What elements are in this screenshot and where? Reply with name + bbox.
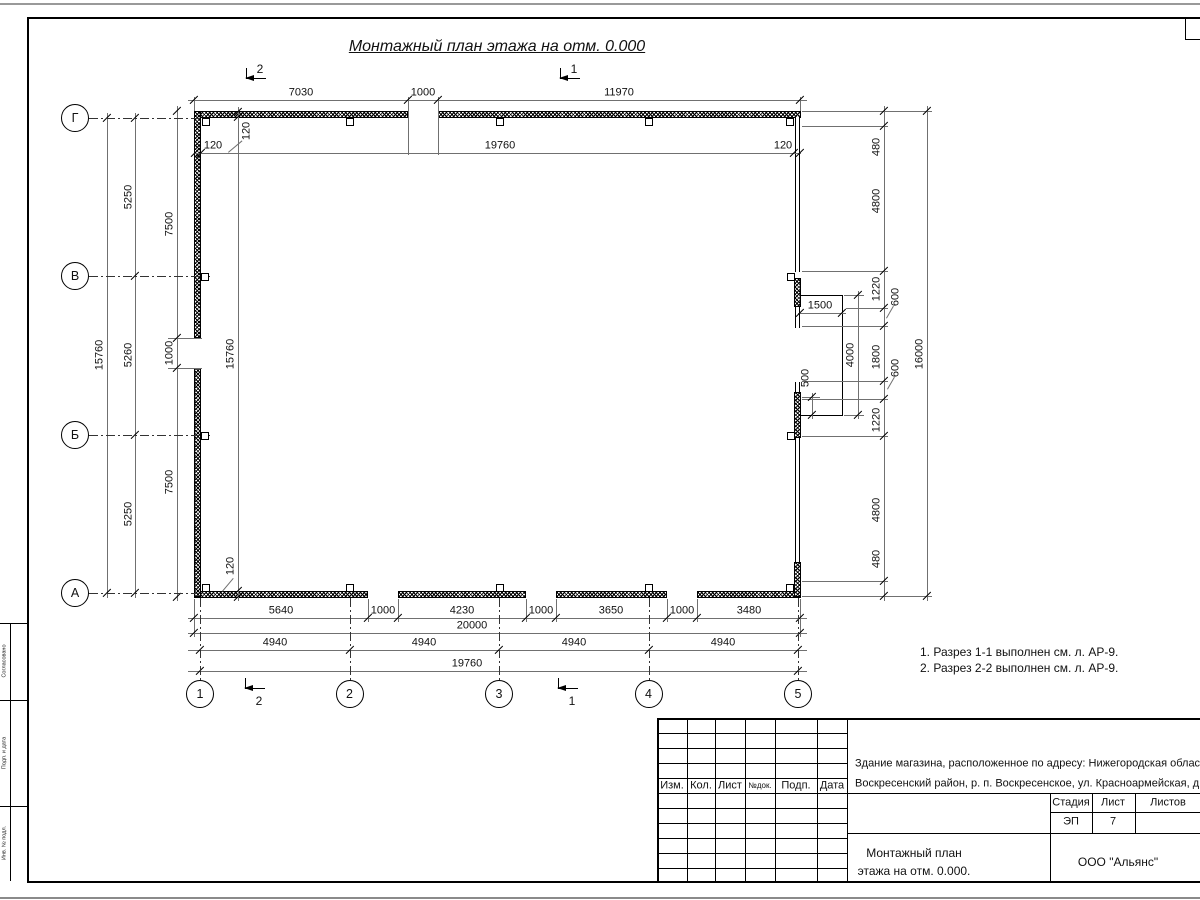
dim-label: 15760 <box>226 339 237 370</box>
tb-col-ndok: №док. <box>748 782 771 790</box>
dim-label: 1500 <box>808 301 832 312</box>
section-mark-stroke <box>245 678 246 688</box>
dim-label: 19760 <box>452 659 483 670</box>
tb-sheet-label: Лист <box>1101 798 1125 809</box>
frame-line <box>27 881 1200 883</box>
dim-label: 20000 <box>457 621 488 632</box>
section-mark-label: 2 <box>256 695 263 707</box>
dim-label: 7500 <box>165 212 176 236</box>
wall-right-pier-1 <box>794 278 801 307</box>
dimension-line <box>188 100 807 101</box>
dim-label: 7030 <box>289 88 313 99</box>
dim-label: 1000 <box>411 88 435 99</box>
column-marker <box>496 118 504 126</box>
dim-label: 1000 <box>165 341 176 365</box>
axis-bubble-bottom: 1 <box>186 680 214 708</box>
wall-right-thin-4 <box>795 438 800 562</box>
frame-line <box>658 868 847 869</box>
axis-bubble-left: Б <box>61 421 89 449</box>
frame-line <box>658 823 847 824</box>
dim-label: 1000 <box>371 606 395 617</box>
column-marker <box>787 432 795 440</box>
dimension-line <box>802 126 888 127</box>
wall-bottom-3 <box>556 591 667 598</box>
column-marker <box>346 584 354 592</box>
wall-left-lower <box>194 368 201 597</box>
wall-bottom-1 <box>194 591 368 598</box>
wall-right-lower <box>794 562 801 597</box>
dim-label: 120 <box>204 141 222 152</box>
dimension-line <box>927 106 928 601</box>
dim-label: 600 <box>891 359 902 377</box>
dim-label: 500 <box>801 369 812 387</box>
tb-col-podp: Подп. <box>781 781 810 792</box>
tb-drawing-name-1: Монтажный план <box>866 847 962 859</box>
axis-bubble-bottom: 5 <box>784 680 812 708</box>
dim-label: 4940 <box>412 638 436 649</box>
frame-line <box>715 718 716 881</box>
dim-label: 600 <box>891 288 902 306</box>
dim-label: 4230 <box>450 606 474 617</box>
tb-col-data: Дата <box>820 781 844 792</box>
dim-label: 1220 <box>872 408 883 432</box>
dim-label: 4800 <box>872 189 883 213</box>
dim-label: 4940 <box>263 638 287 649</box>
dimension-line <box>408 97 409 155</box>
frame-line <box>658 853 847 854</box>
section-mark-label: 2 <box>257 63 264 75</box>
tb-col-izm: Изм. <box>660 781 684 792</box>
dimension-line <box>802 111 932 112</box>
dim-label: 11970 <box>604 88 634 99</box>
note-section-1: 1. Разрез 1-1 выполнен см. л. АР-9. <box>920 646 1118 658</box>
tb-drawing-name-2: этажа на отм. 0.000. <box>858 865 971 877</box>
frame-line <box>657 718 659 881</box>
frame-line <box>1092 793 1093 833</box>
axis-bubble-bottom: 3 <box>485 680 513 708</box>
dim-label: 1800 <box>872 345 883 369</box>
dim-label: 480 <box>872 550 883 568</box>
frame-line <box>0 806 27 807</box>
dim-label: 15760 <box>95 340 106 371</box>
frame-label-1: Согласовано <box>2 644 8 677</box>
column-marker <box>346 118 354 126</box>
column-marker <box>496 584 504 592</box>
dim-label: 5250 <box>124 185 135 209</box>
section-mark-label: 1 <box>569 695 576 707</box>
dim-label: 3650 <box>599 606 623 617</box>
dim-label: 16000 <box>915 339 926 370</box>
drawing-sheet: Монтажный план этажа на отм. 0.000 70301… <box>0 0 1200 900</box>
dimension-line <box>107 113 108 598</box>
dim-label: 120 <box>226 557 237 575</box>
dimension-line <box>802 381 888 382</box>
drawing-title: Монтажный план этажа на отм. 0.000 <box>349 38 645 56</box>
dim-label: 120 <box>774 141 792 152</box>
column-marker <box>202 118 210 126</box>
porch-bottom-line <box>800 415 842 416</box>
frame-line <box>745 718 746 881</box>
frame-line <box>1135 793 1136 833</box>
dimension-line <box>844 295 864 296</box>
axis-bubble-left: В <box>61 262 89 290</box>
frame-line <box>687 718 688 881</box>
tb-description-line2: Воскресенский район, р. п. Воскресенское… <box>855 779 1200 790</box>
frame-label-2: Подп. и дата <box>2 737 8 769</box>
dimension-line <box>802 436 888 437</box>
column-marker <box>201 432 209 440</box>
dimension-line <box>802 326 888 327</box>
axis-bubble-left: А <box>61 579 89 607</box>
frame-line <box>1185 17 1186 39</box>
column-marker <box>645 584 653 592</box>
dim-label: 4940 <box>711 638 735 649</box>
dimension-line <box>168 368 202 369</box>
axis-bubble-bottom: 2 <box>336 680 364 708</box>
leader-line <box>887 377 895 390</box>
frame-line <box>0 700 27 701</box>
frame-line <box>658 763 847 764</box>
dimension-line <box>168 338 202 339</box>
dimension-line <box>188 633 807 634</box>
axis-line <box>798 598 799 680</box>
frame-line <box>847 718 848 881</box>
leader-line <box>222 578 234 592</box>
column-marker <box>787 273 795 281</box>
dim-label: 3480 <box>737 606 761 617</box>
axis-line <box>350 598 351 680</box>
frame-label-3: Инв. № подл. <box>2 826 8 860</box>
frame-line <box>27 17 29 881</box>
column-marker <box>786 584 794 592</box>
axis-bubble-bottom: 4 <box>635 680 663 708</box>
dimension-line <box>802 399 888 400</box>
column-marker <box>645 118 653 126</box>
tb-sheet-value: 7 <box>1110 817 1116 828</box>
frame-line <box>775 718 776 881</box>
frame-line <box>658 718 1200 720</box>
axis-line <box>89 435 210 436</box>
dimension-line <box>802 581 888 582</box>
wall-bottom-4 <box>697 591 801 598</box>
dimension-line <box>177 106 178 601</box>
column-marker <box>786 118 794 126</box>
axis-line <box>499 598 500 680</box>
dimension-line <box>438 97 439 155</box>
axis-line <box>89 118 210 119</box>
dim-label: 120 <box>242 122 253 140</box>
section-mark-stroke <box>560 68 561 78</box>
frame-line <box>658 748 847 749</box>
axis-line <box>89 593 210 594</box>
tb-stage-value: ЭП <box>1063 817 1079 828</box>
dimension-line <box>802 271 888 272</box>
dim-label: 5250 <box>124 502 135 526</box>
frame-line <box>1185 39 1200 40</box>
tb-stage-label: Стадия <box>1052 798 1090 809</box>
porch-top-line <box>800 295 842 296</box>
tb-sheets-label: Листов <box>1150 798 1186 809</box>
frame-line <box>1050 793 1051 881</box>
axis-line <box>649 598 650 680</box>
dim-label: 4000 <box>846 343 857 367</box>
tb-description-line1: Здание магазина, расположенное по адресу… <box>855 759 1200 770</box>
note-section-2: 2. Разрез 2-2 выполнен см. л. АР-9. <box>920 662 1118 674</box>
frame-line <box>27 17 1200 19</box>
axis-bubble-left: Г <box>61 104 89 132</box>
dim-label: 5260 <box>124 343 135 367</box>
wall-right-thin-1 <box>795 117 800 272</box>
dim-label: 7500 <box>165 470 176 494</box>
frame-line <box>847 833 1200 834</box>
frame-line <box>817 718 818 881</box>
dim-label: 1000 <box>670 606 694 617</box>
frame-line <box>0 623 27 624</box>
tb-col-kol: Кол. <box>690 781 712 792</box>
wall-top-right <box>438 111 801 118</box>
dimension-line <box>188 671 807 672</box>
frame-line <box>658 793 1200 794</box>
dimension-line <box>194 153 801 154</box>
frame-line <box>0 3 1200 5</box>
dimension-line <box>238 107 239 601</box>
dim-label: 1220 <box>872 277 883 301</box>
wall-bottom-2 <box>398 591 526 598</box>
frame-line <box>0 897 1200 899</box>
dimension-line <box>844 415 864 416</box>
dimension-line <box>188 618 807 619</box>
section-mark-stroke <box>558 678 559 688</box>
section-mark-stroke <box>246 68 247 78</box>
frame-line <box>658 838 847 839</box>
leader-line <box>228 140 242 152</box>
tb-col-list: Лист <box>718 781 742 792</box>
column-marker <box>202 584 210 592</box>
dim-label: 1000 <box>529 606 553 617</box>
wall-top-left <box>194 111 408 118</box>
frame-line <box>658 778 847 779</box>
frame-line <box>658 733 847 734</box>
axis-line <box>89 276 210 277</box>
dimension-line <box>802 596 932 597</box>
dim-label: 480 <box>872 138 883 156</box>
frame-line <box>658 808 847 809</box>
dimension-line <box>135 113 136 598</box>
tb-company: ООО "Альянс" <box>1078 856 1158 868</box>
wall-left-upper <box>194 111 201 338</box>
dim-label: 4800 <box>872 498 883 522</box>
section-mark-label: 1 <box>571 63 578 75</box>
dim-label: 19760 <box>485 141 516 152</box>
frame-line <box>10 623 11 881</box>
frame-line <box>1050 812 1200 813</box>
dimension-line <box>884 106 885 601</box>
column-marker <box>201 273 209 281</box>
dim-label: 4940 <box>562 638 586 649</box>
axis-line <box>200 598 201 680</box>
dim-label: 5640 <box>269 606 293 617</box>
